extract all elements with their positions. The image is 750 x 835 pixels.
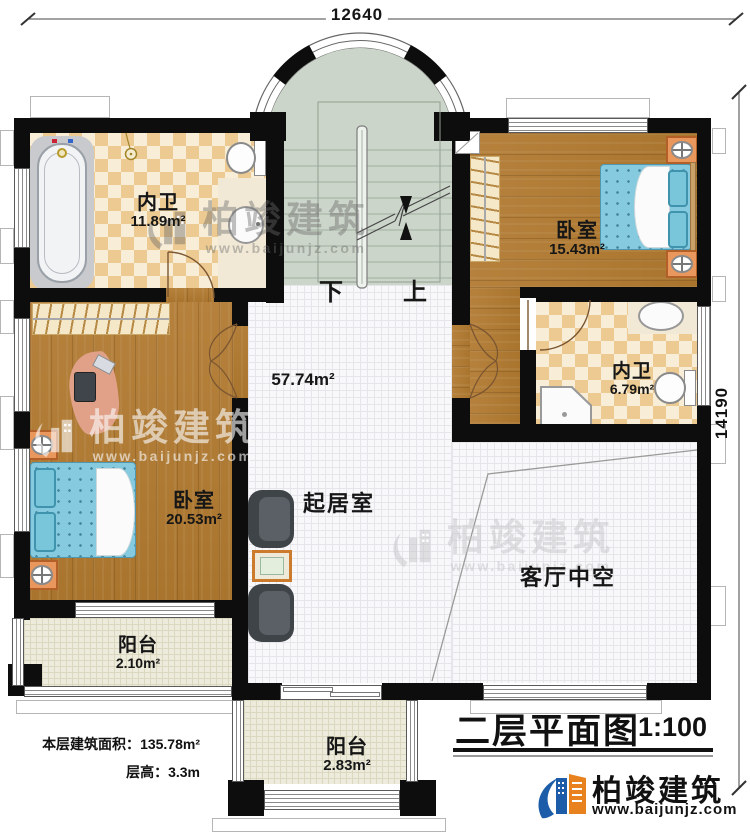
- balcony-railing: [232, 700, 244, 782]
- nightstand: [666, 136, 698, 164]
- window-sill: [0, 396, 14, 450]
- nightstand: [26, 560, 58, 590]
- wall: [382, 683, 440, 700]
- lamp-icon: [31, 435, 53, 455]
- chair-cushion: [259, 591, 290, 635]
- wardrobe: [470, 156, 500, 262]
- wall: [232, 600, 248, 700]
- window-sill: [710, 586, 726, 626]
- title-underline: [453, 748, 713, 752]
- floor-plan-canvas: 柏竣建筑 www.baijunjz.com 柏竣建筑 www.baijunjz.…: [0, 0, 750, 835]
- window-sill: [0, 228, 14, 264]
- room-area: 11.89m²: [130, 214, 185, 230]
- toilet: [226, 142, 256, 174]
- wall: [452, 133, 470, 303]
- window: [697, 306, 711, 406]
- bathtub-drain: [57, 148, 67, 158]
- lamp-icon: [671, 141, 693, 159]
- room-label-balcony-left: 阳台 2.10m²: [116, 636, 160, 671]
- window-sill: [0, 130, 14, 166]
- window: [483, 685, 647, 700]
- window-sill: [712, 276, 726, 302]
- room-name: 阳台: [323, 737, 371, 758]
- window-sill: [16, 700, 238, 714]
- hallway-floor: [470, 287, 520, 424]
- bathtub-rim: [44, 152, 80, 274]
- bed-blanket-fold: [634, 166, 670, 248]
- wall: [697, 118, 711, 695]
- window: [14, 448, 30, 532]
- stairs-down-label: 下: [319, 280, 343, 305]
- lamp-icon: [671, 255, 693, 273]
- wall: [452, 424, 711, 442]
- brand-website: www.baijunjz.com: [592, 801, 737, 818]
- wall: [14, 288, 166, 302]
- floor-height-label: 层高：: [126, 764, 168, 780]
- window-sill: [506, 98, 650, 118]
- living-area-value: 57.74m²: [271, 371, 334, 389]
- room-label-bath-right: 内卫 6.79m²: [610, 362, 654, 397]
- window-sill: [0, 300, 14, 334]
- room-name: 卧室: [549, 221, 605, 242]
- room-label-bedroom-left: 卧室 20.53m²: [166, 491, 222, 528]
- side-table-top: [260, 557, 284, 575]
- wall: [14, 118, 254, 133]
- floor-height-value: 3.3m: [168, 764, 200, 780]
- room-name: 内卫: [130, 193, 185, 214]
- wall: [232, 302, 248, 326]
- title-underline-thin: [453, 755, 713, 757]
- computer-monitor: [74, 372, 96, 402]
- room-area: 15.43m²: [549, 242, 605, 258]
- wall: [232, 398, 248, 620]
- balcony-railing: [12, 618, 24, 686]
- armchair: [248, 490, 294, 548]
- stairwell-floor: [284, 133, 452, 285]
- window: [14, 168, 30, 248]
- shower-drain-dot: [562, 412, 567, 417]
- wall: [266, 133, 284, 303]
- window: [508, 118, 648, 133]
- armchair: [248, 584, 294, 642]
- dimension-right: 14190: [712, 382, 730, 444]
- wall: [248, 683, 282, 700]
- room-label-balcony-bottom: 阳台 2.83m²: [323, 737, 371, 774]
- lamp-icon: [31, 565, 53, 585]
- floor-height: 层高：3.3m: [0, 762, 200, 782]
- sink-faucet-dot: [256, 222, 260, 226]
- wall: [520, 287, 711, 302]
- wall: [214, 288, 266, 302]
- room-name: 内卫: [610, 362, 654, 382]
- floor-stats: 本层建筑面积：135.78m²: [0, 734, 200, 754]
- faucet-hot-dot: [52, 139, 57, 143]
- pillow: [668, 211, 688, 248]
- wall: [520, 287, 536, 298]
- door-leaf: [455, 131, 480, 154]
- sliding-door-leaf: [330, 692, 380, 697]
- chair-cushion: [259, 497, 290, 541]
- door-opening: [520, 298, 536, 350]
- bed-blanket-fold: [96, 468, 135, 556]
- room-name: 阳台: [116, 636, 160, 656]
- plan-title: 二层平面图: [455, 703, 640, 754]
- wall: [440, 683, 483, 700]
- room-area: 2.83m²: [323, 758, 371, 774]
- room-area: 6.79m²: [610, 382, 654, 397]
- bathroom-door-threshold: [166, 288, 214, 302]
- room-area: 2.10m²: [116, 656, 160, 671]
- brand-logo-icon: [534, 766, 592, 822]
- window-sill: [30, 96, 110, 118]
- wall: [452, 303, 470, 325]
- room-label-bedroom-right: 卧室 15.43m²: [549, 221, 605, 258]
- nightstand: [666, 250, 698, 278]
- sliding-door-leaf: [283, 687, 333, 692]
- living-room-name: 起居室: [303, 492, 375, 515]
- window-sill: [212, 818, 446, 832]
- sink: [638, 301, 684, 331]
- balcony-railing: [24, 686, 232, 697]
- room-label-bath-top: 内卫 11.89m²: [130, 193, 185, 230]
- pillow: [668, 170, 688, 207]
- window: [14, 318, 30, 412]
- wall: [452, 398, 470, 424]
- room-area: 20.53m²: [166, 512, 222, 528]
- bed-headboard: [690, 162, 696, 252]
- nightstand: [26, 430, 58, 460]
- balcony-railing: [406, 700, 418, 782]
- wardrobe: [32, 303, 170, 335]
- floor-area-label: 本层建筑面积：: [42, 736, 140, 752]
- plan-scale: 1:100: [638, 712, 707, 743]
- void-floor: [452, 442, 697, 683]
- window-sill: [0, 534, 14, 578]
- window-sill: [712, 128, 726, 154]
- pillow: [34, 468, 56, 508]
- balcony-pillar: [400, 780, 436, 816]
- room-name: 卧室: [166, 491, 222, 512]
- void-room-name: 客厅中空: [520, 566, 616, 589]
- floor-area-value: 135.78m²: [140, 736, 200, 752]
- toilet: [654, 372, 686, 404]
- pillow: [34, 512, 56, 552]
- faucet-cold-dot: [68, 139, 73, 143]
- sliding-door: [75, 602, 215, 618]
- dimension-top: 12640: [326, 6, 388, 24]
- stairs-up-label: 上: [403, 280, 427, 305]
- balcony-railing: [264, 790, 400, 810]
- balcony-pillar: [228, 780, 264, 816]
